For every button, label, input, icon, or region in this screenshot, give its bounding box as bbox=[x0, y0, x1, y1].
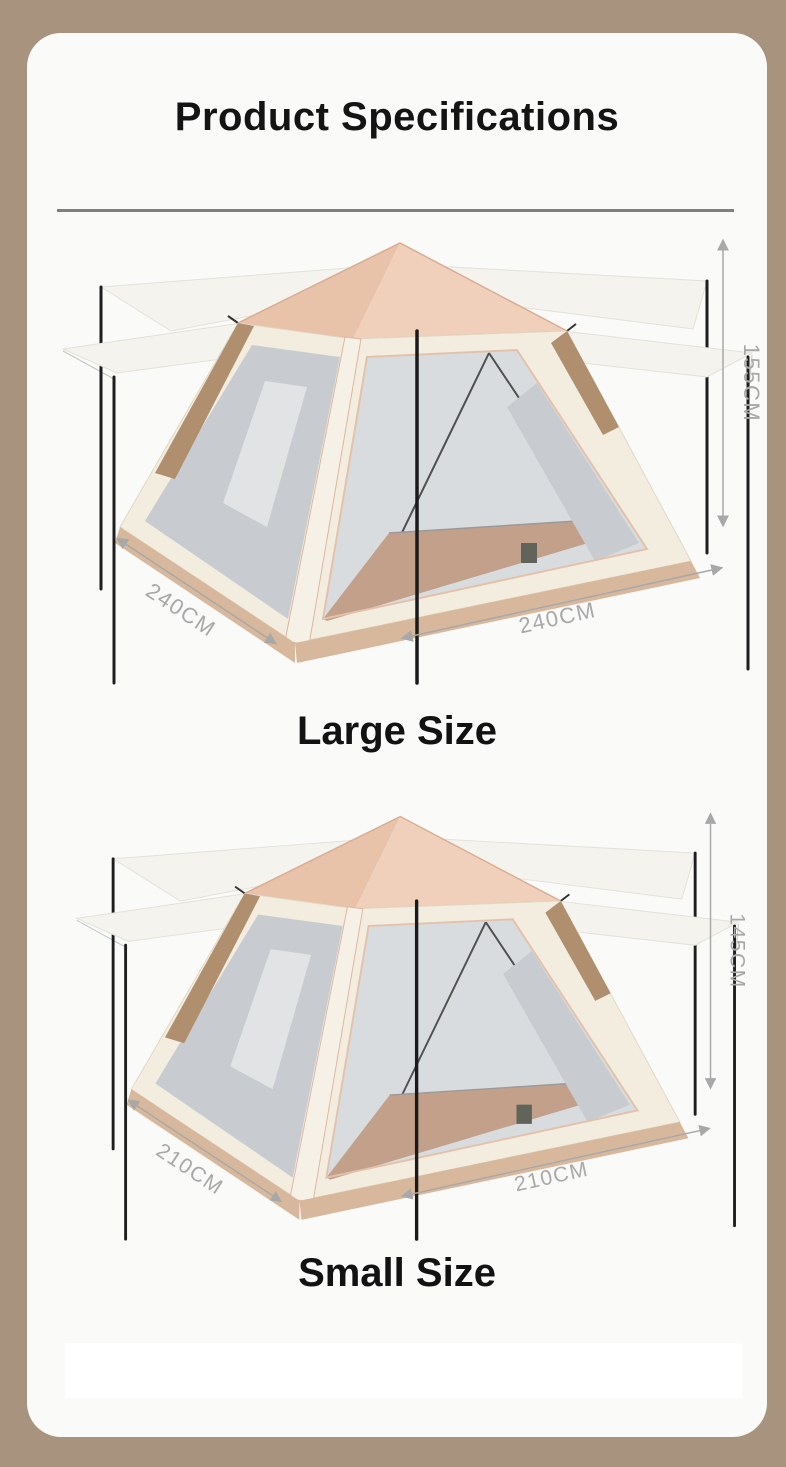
tent-illustration-small: 145CM 210CM 210CM bbox=[55, 805, 760, 1242]
product-spec-card: Product Specifications bbox=[27, 33, 767, 1437]
tent-illustration-large: 155CM 240CM 240CM bbox=[55, 231, 760, 686]
size-caption-large: Large Size bbox=[27, 709, 767, 754]
tent-figure-small: 145CM 210CM 210CM bbox=[55, 805, 760, 1242]
storage-pocket bbox=[521, 543, 537, 563]
height-dimension: 155CM bbox=[723, 241, 760, 525]
height-dimension-label: 145CM bbox=[726, 913, 749, 988]
next-section-strip bbox=[65, 1343, 742, 1398]
height-dimension-label: 155CM bbox=[739, 344, 760, 422]
height-dimension: 145CM bbox=[711, 815, 749, 1088]
page-title: Product Specifications bbox=[27, 95, 767, 140]
tent-figure-large: 155CM 240CM 240CM bbox=[55, 231, 760, 686]
size-caption-small: Small Size bbox=[27, 1251, 767, 1296]
storage-pocket bbox=[517, 1105, 532, 1124]
page-background: { "header": { "title": "Product Specific… bbox=[0, 0, 786, 1467]
header-divider bbox=[57, 209, 734, 212]
